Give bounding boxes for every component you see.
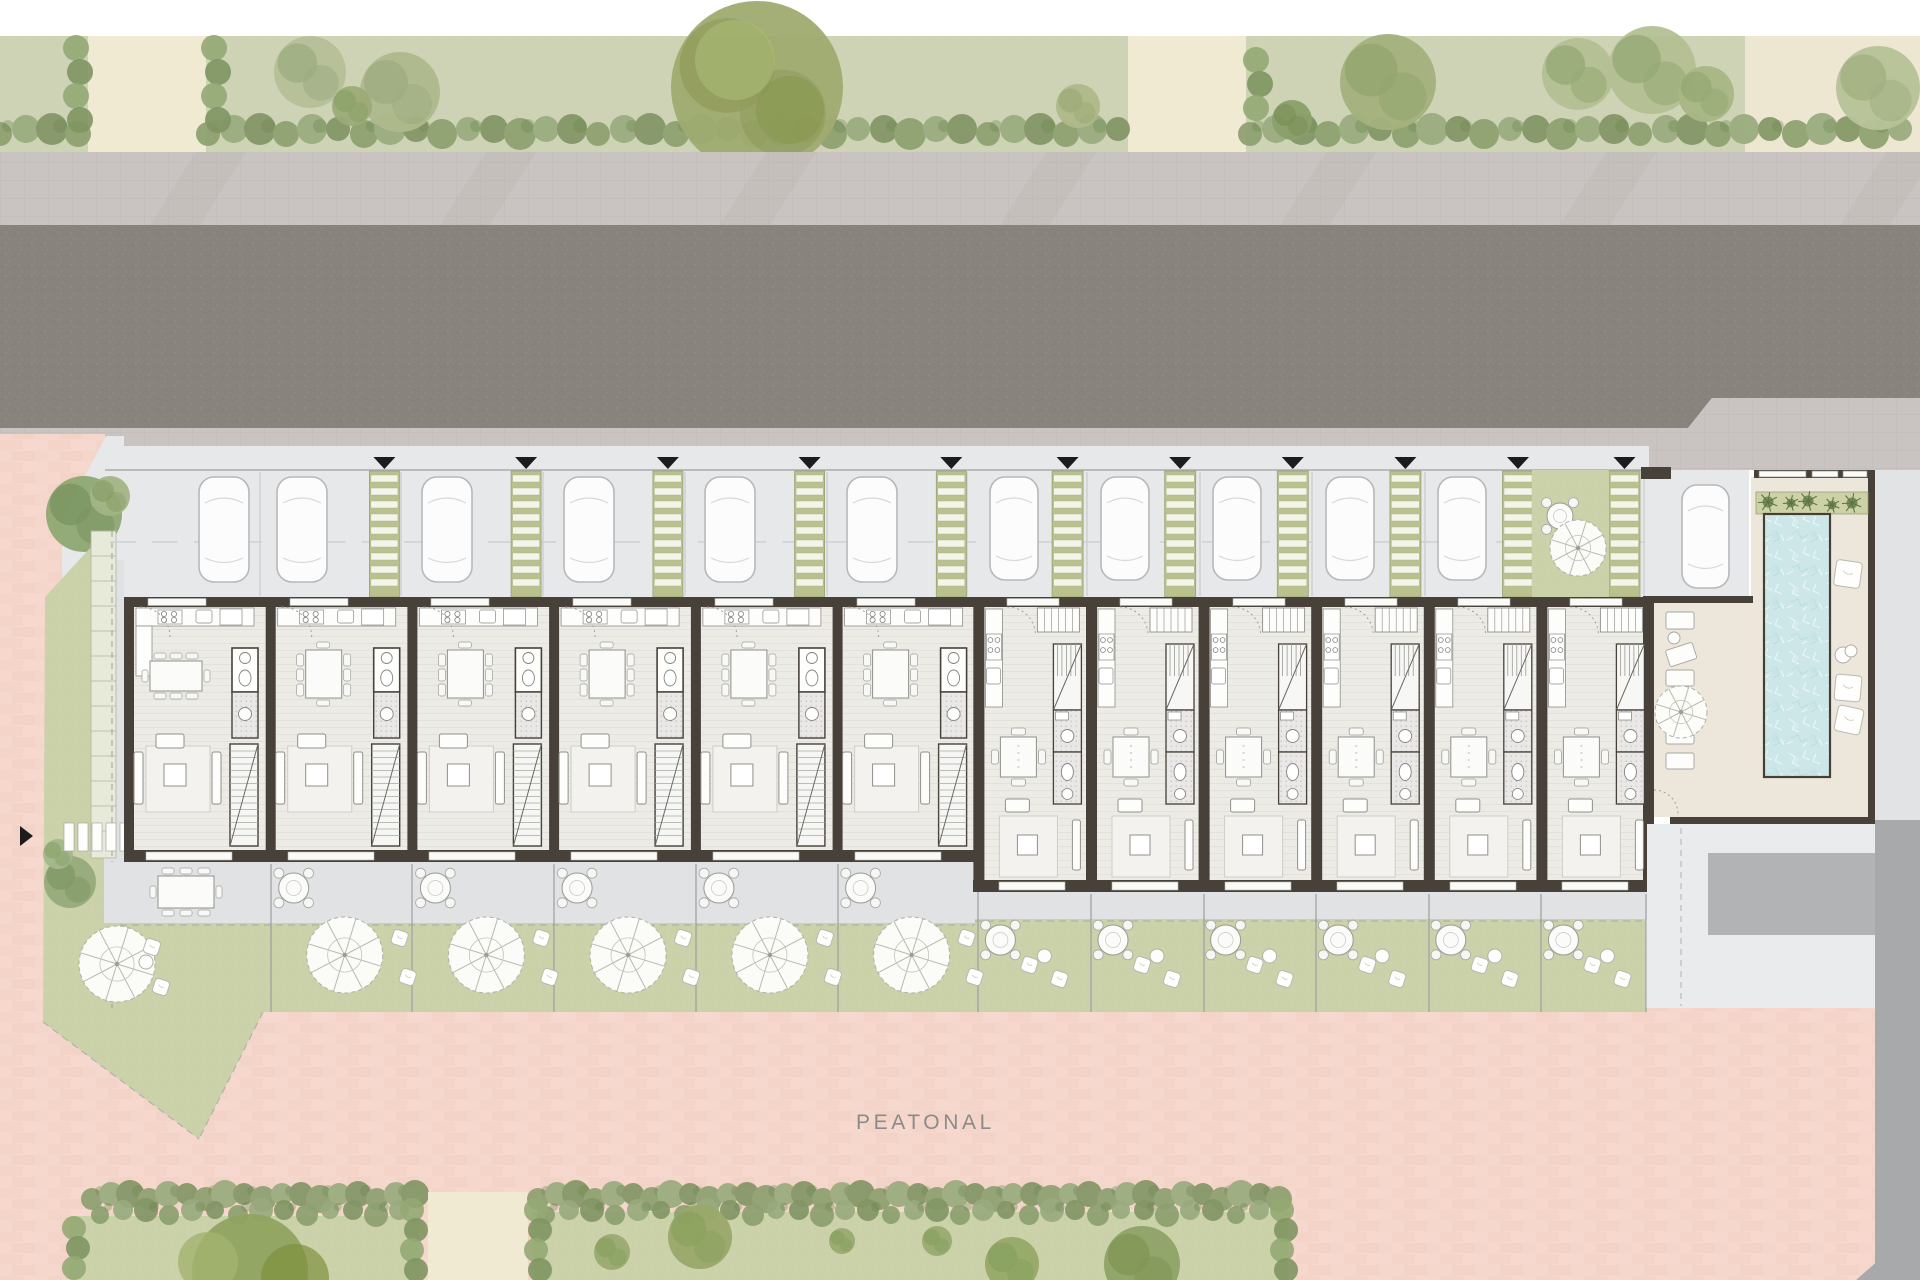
svg-text:PEATONAL: PEATONAL [856,1111,995,1134]
